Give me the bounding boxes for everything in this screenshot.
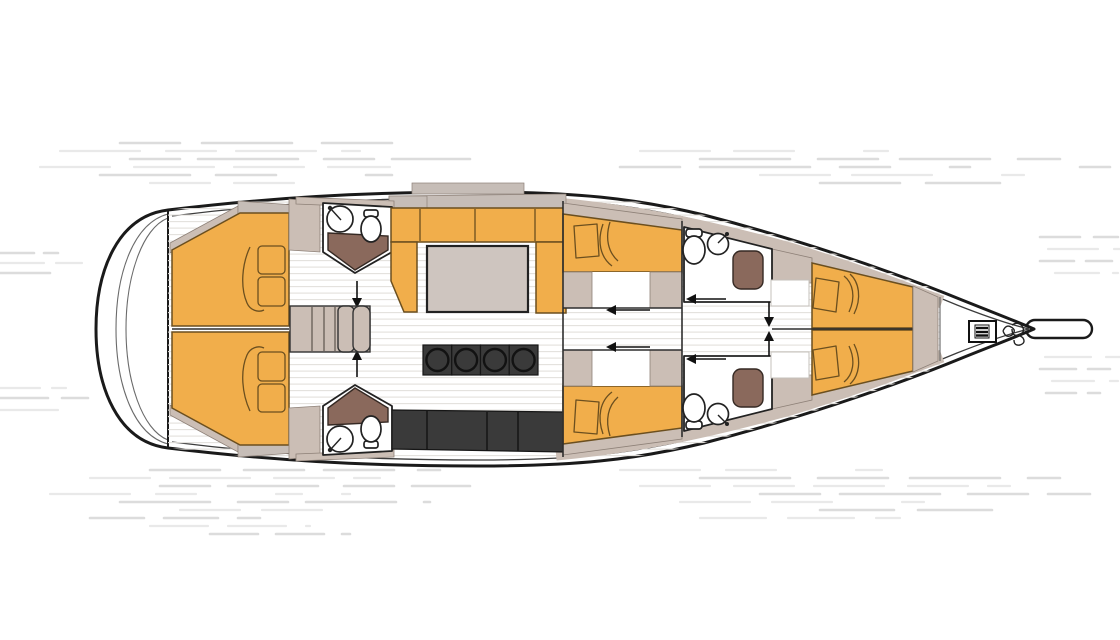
settee-arm-right bbox=[536, 242, 566, 313]
wall-block bbox=[289, 199, 320, 252]
toilet-icon bbox=[361, 216, 381, 242]
sink-icon bbox=[708, 404, 729, 425]
wardrobe-block bbox=[563, 350, 592, 386]
stair-step bbox=[338, 306, 354, 352]
settee-back bbox=[391, 208, 566, 242]
faucet-knob bbox=[725, 232, 729, 236]
wardrobe-block bbox=[650, 272, 682, 308]
galley-counter bbox=[392, 410, 565, 452]
shower-seat bbox=[733, 369, 763, 407]
faucet-knob bbox=[328, 206, 332, 210]
entry-step bbox=[771, 352, 809, 378]
deck-hatch bbox=[389, 196, 427, 209]
wardrobe-block bbox=[650, 350, 682, 386]
coachroof-panel bbox=[412, 183, 524, 194]
faucet-knob bbox=[725, 422, 729, 426]
sink-icon bbox=[708, 234, 729, 255]
floor-plan-canvas bbox=[0, 0, 1120, 640]
bow-trim bbox=[913, 286, 938, 372]
bowsprit bbox=[1026, 320, 1092, 338]
companionway-stairs bbox=[290, 306, 370, 352]
entry-step bbox=[771, 280, 809, 306]
salon bbox=[391, 208, 566, 313]
shower-seat bbox=[733, 251, 763, 289]
mid-cabin-starboard bbox=[563, 342, 682, 455]
salon-table bbox=[427, 246, 528, 312]
faucet-knob bbox=[328, 448, 332, 452]
floor-plan-svg bbox=[0, 0, 1120, 640]
mid-cabin-port bbox=[563, 203, 682, 315]
toilet-icon bbox=[361, 416, 381, 442]
toilet-icon bbox=[683, 236, 705, 264]
toilet-icon bbox=[683, 394, 705, 422]
stair-step bbox=[353, 306, 370, 352]
cooktop bbox=[423, 345, 538, 375]
wall-block bbox=[289, 406, 320, 459]
wardrobe-block bbox=[563, 272, 592, 308]
